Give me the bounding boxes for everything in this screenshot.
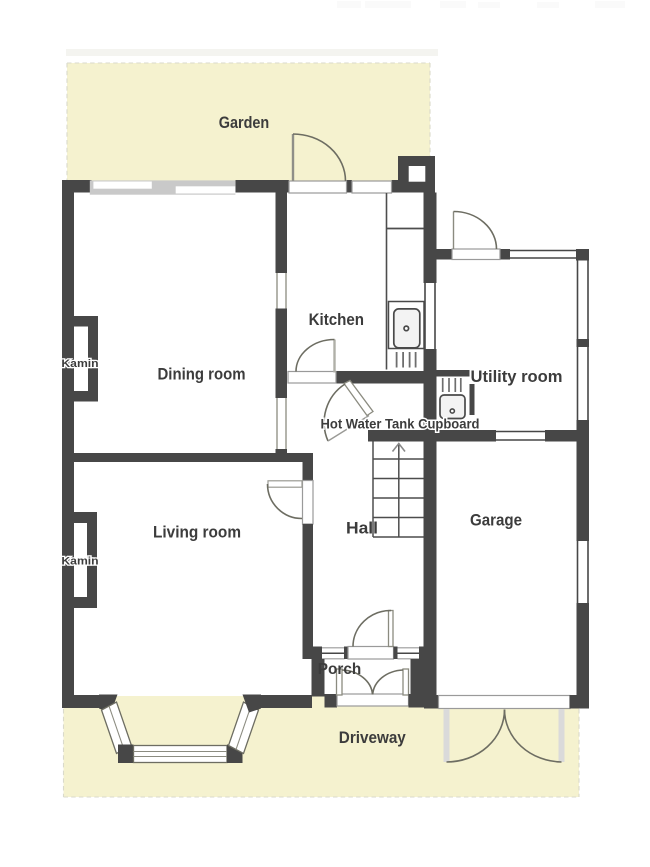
svg-text:Dining room: Dining room — [158, 365, 246, 384]
svg-text:Kamin: Kamin — [61, 556, 99, 568]
svg-text:Living room: Living room — [153, 523, 241, 542]
svg-text:Hot Water Tank Cupboard: Hot Water Tank Cupboard — [321, 415, 480, 431]
svg-text:Hall: Hall — [346, 519, 378, 538]
svg-text:Utility room: Utility room — [471, 367, 563, 386]
svg-text:Garage: Garage — [470, 511, 522, 530]
svg-text:Garden: Garden — [219, 113, 270, 132]
svg-text:Kitchen: Kitchen — [309, 310, 364, 329]
svg-text:Kamin: Kamin — [61, 358, 99, 370]
svg-text:Driveway: Driveway — [339, 728, 406, 747]
svg-text:Porch: Porch — [318, 661, 361, 678]
